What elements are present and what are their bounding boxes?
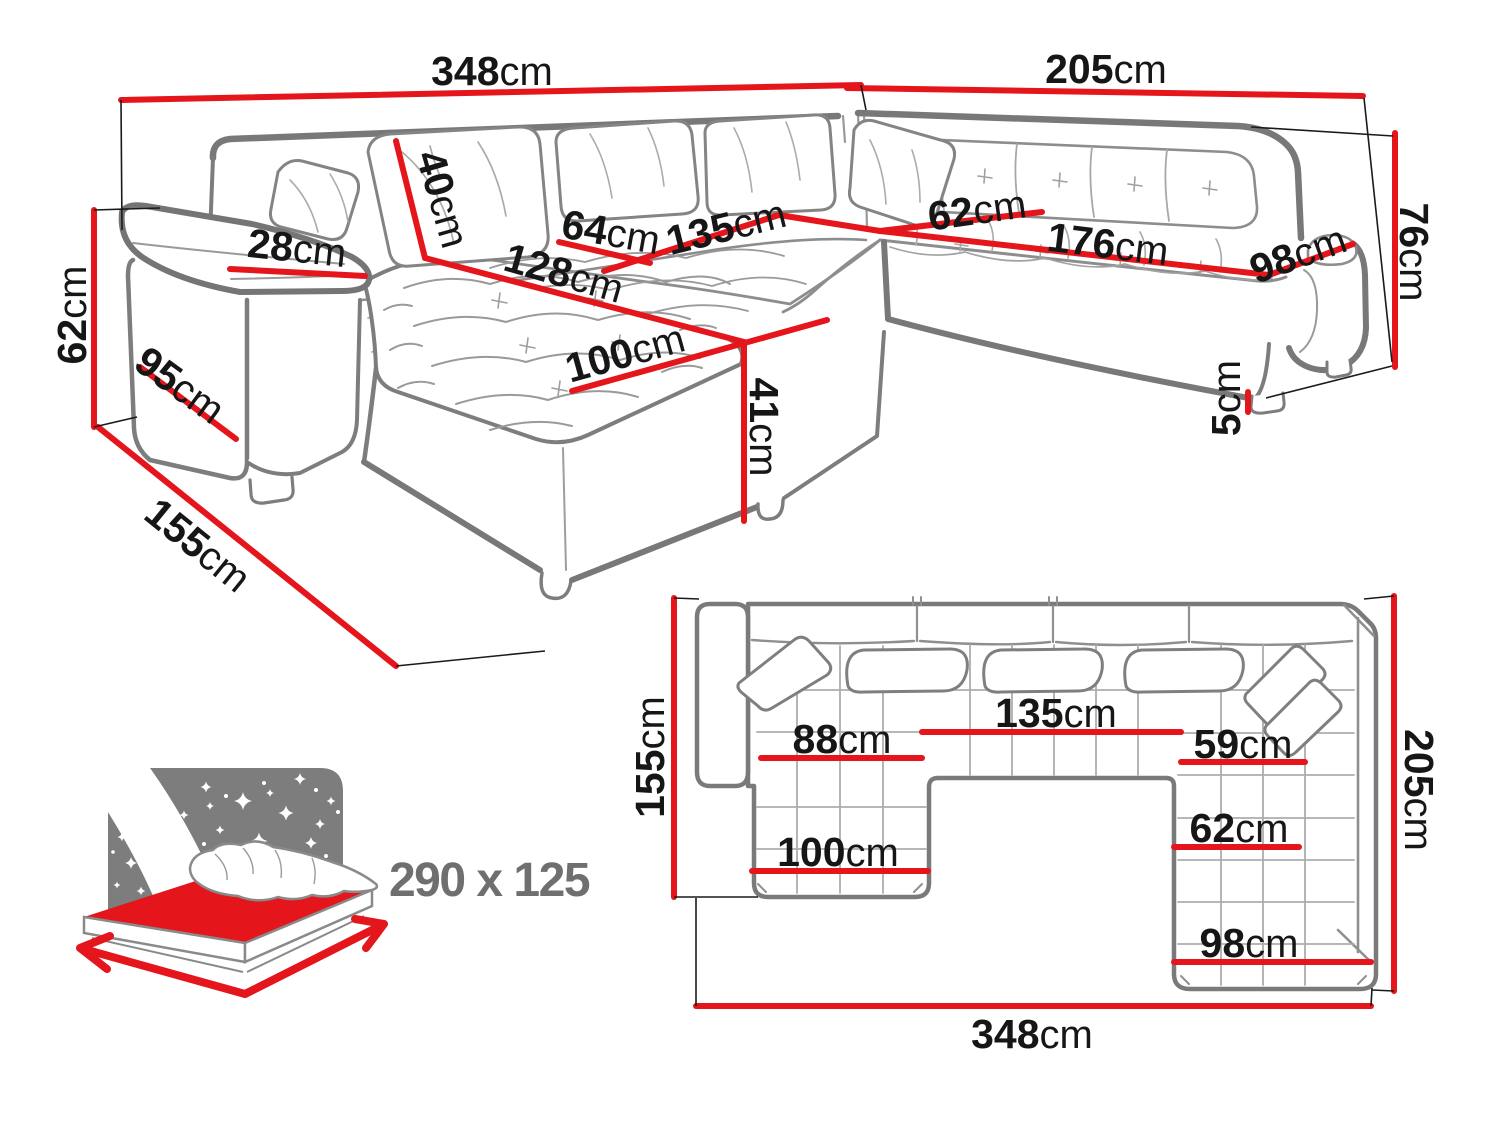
svg-text:155cm: 155cm [627, 696, 673, 818]
svg-text:290 x 125: 290 x 125 [389, 854, 590, 907]
svg-text:205cm: 205cm [1045, 46, 1167, 92]
svg-text:98cm: 98cm [1200, 920, 1299, 966]
svg-text:88cm: 88cm [793, 716, 892, 762]
svg-text:62cm: 62cm [49, 266, 95, 365]
svg-text:135cm: 135cm [995, 690, 1117, 736]
svg-text:5cm: 5cm [1203, 360, 1249, 436]
svg-text:348cm: 348cm [431, 48, 553, 94]
svg-text:100cm: 100cm [777, 829, 899, 875]
svg-text:59cm: 59cm [1194, 721, 1293, 767]
svg-text:348cm: 348cm [971, 1011, 1093, 1057]
svg-text:62cm: 62cm [1190, 805, 1289, 851]
svg-text:205cm: 205cm [1396, 729, 1442, 851]
svg-text:76cm: 76cm [1391, 203, 1437, 302]
svg-text:41cm: 41cm [741, 378, 787, 477]
